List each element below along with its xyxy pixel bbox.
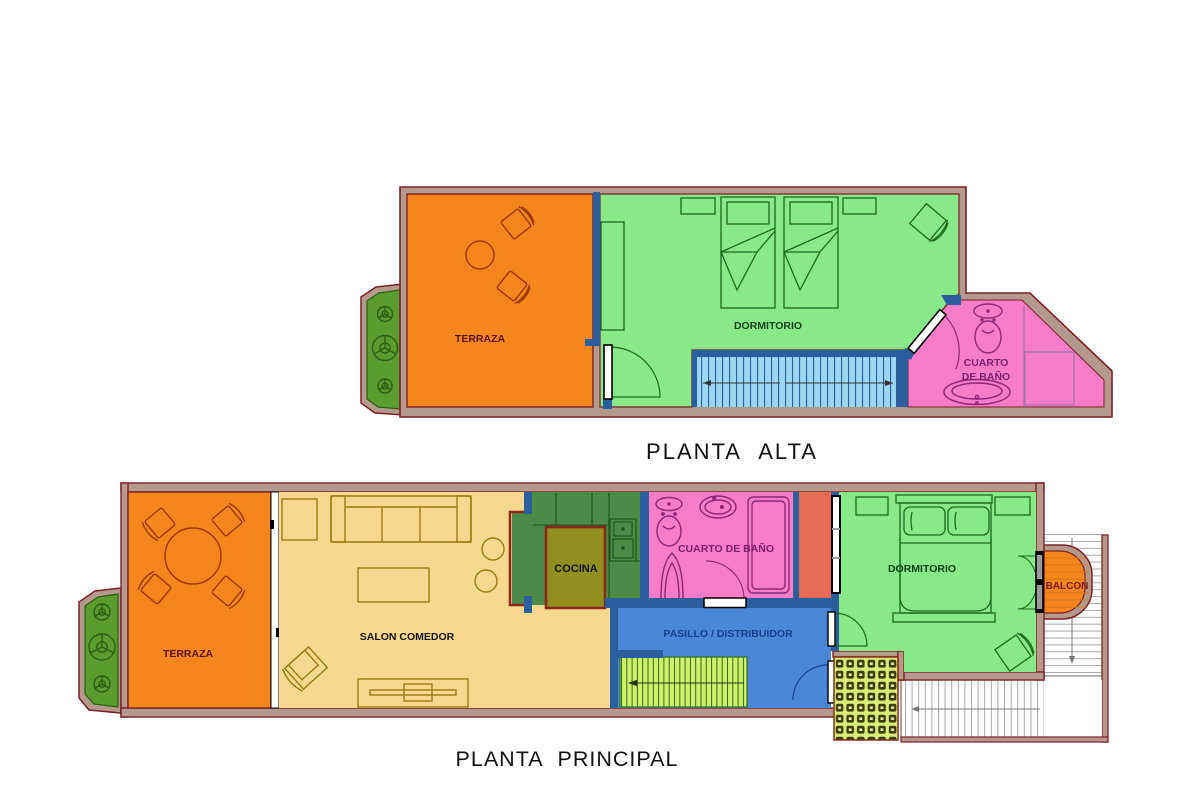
svg-text:PLANTA ALTA: PLANTA ALTA [646,439,818,464]
svg-text:BALCON: BALCON [1046,581,1089,592]
svg-text:CUARTO DE BAÑO: CUARTO DE BAÑO [678,542,774,555]
svg-text:TERRAZA: TERRAZA [163,648,214,660]
svg-text:SALON COMEDOR: SALON COMEDOR [360,631,455,643]
svg-text:DORMITORIO: DORMITORIO [888,563,956,575]
svg-text:DORMITORIO: DORMITORIO [734,320,802,332]
svg-text:TERRAZA: TERRAZA [455,333,506,345]
svg-text:PLANTA PRINCIPAL: PLANTA PRINCIPAL [456,747,679,771]
svg-text:PASILLO / DISTRIBUIDOR: PASILLO / DISTRIBUIDOR [663,628,793,640]
svg-text:COCINA: COCINA [554,563,597,575]
svg-text:DE BAÑO: DE BAÑO [962,370,1010,383]
svg-text:CUARTO: CUARTO [964,357,1009,369]
